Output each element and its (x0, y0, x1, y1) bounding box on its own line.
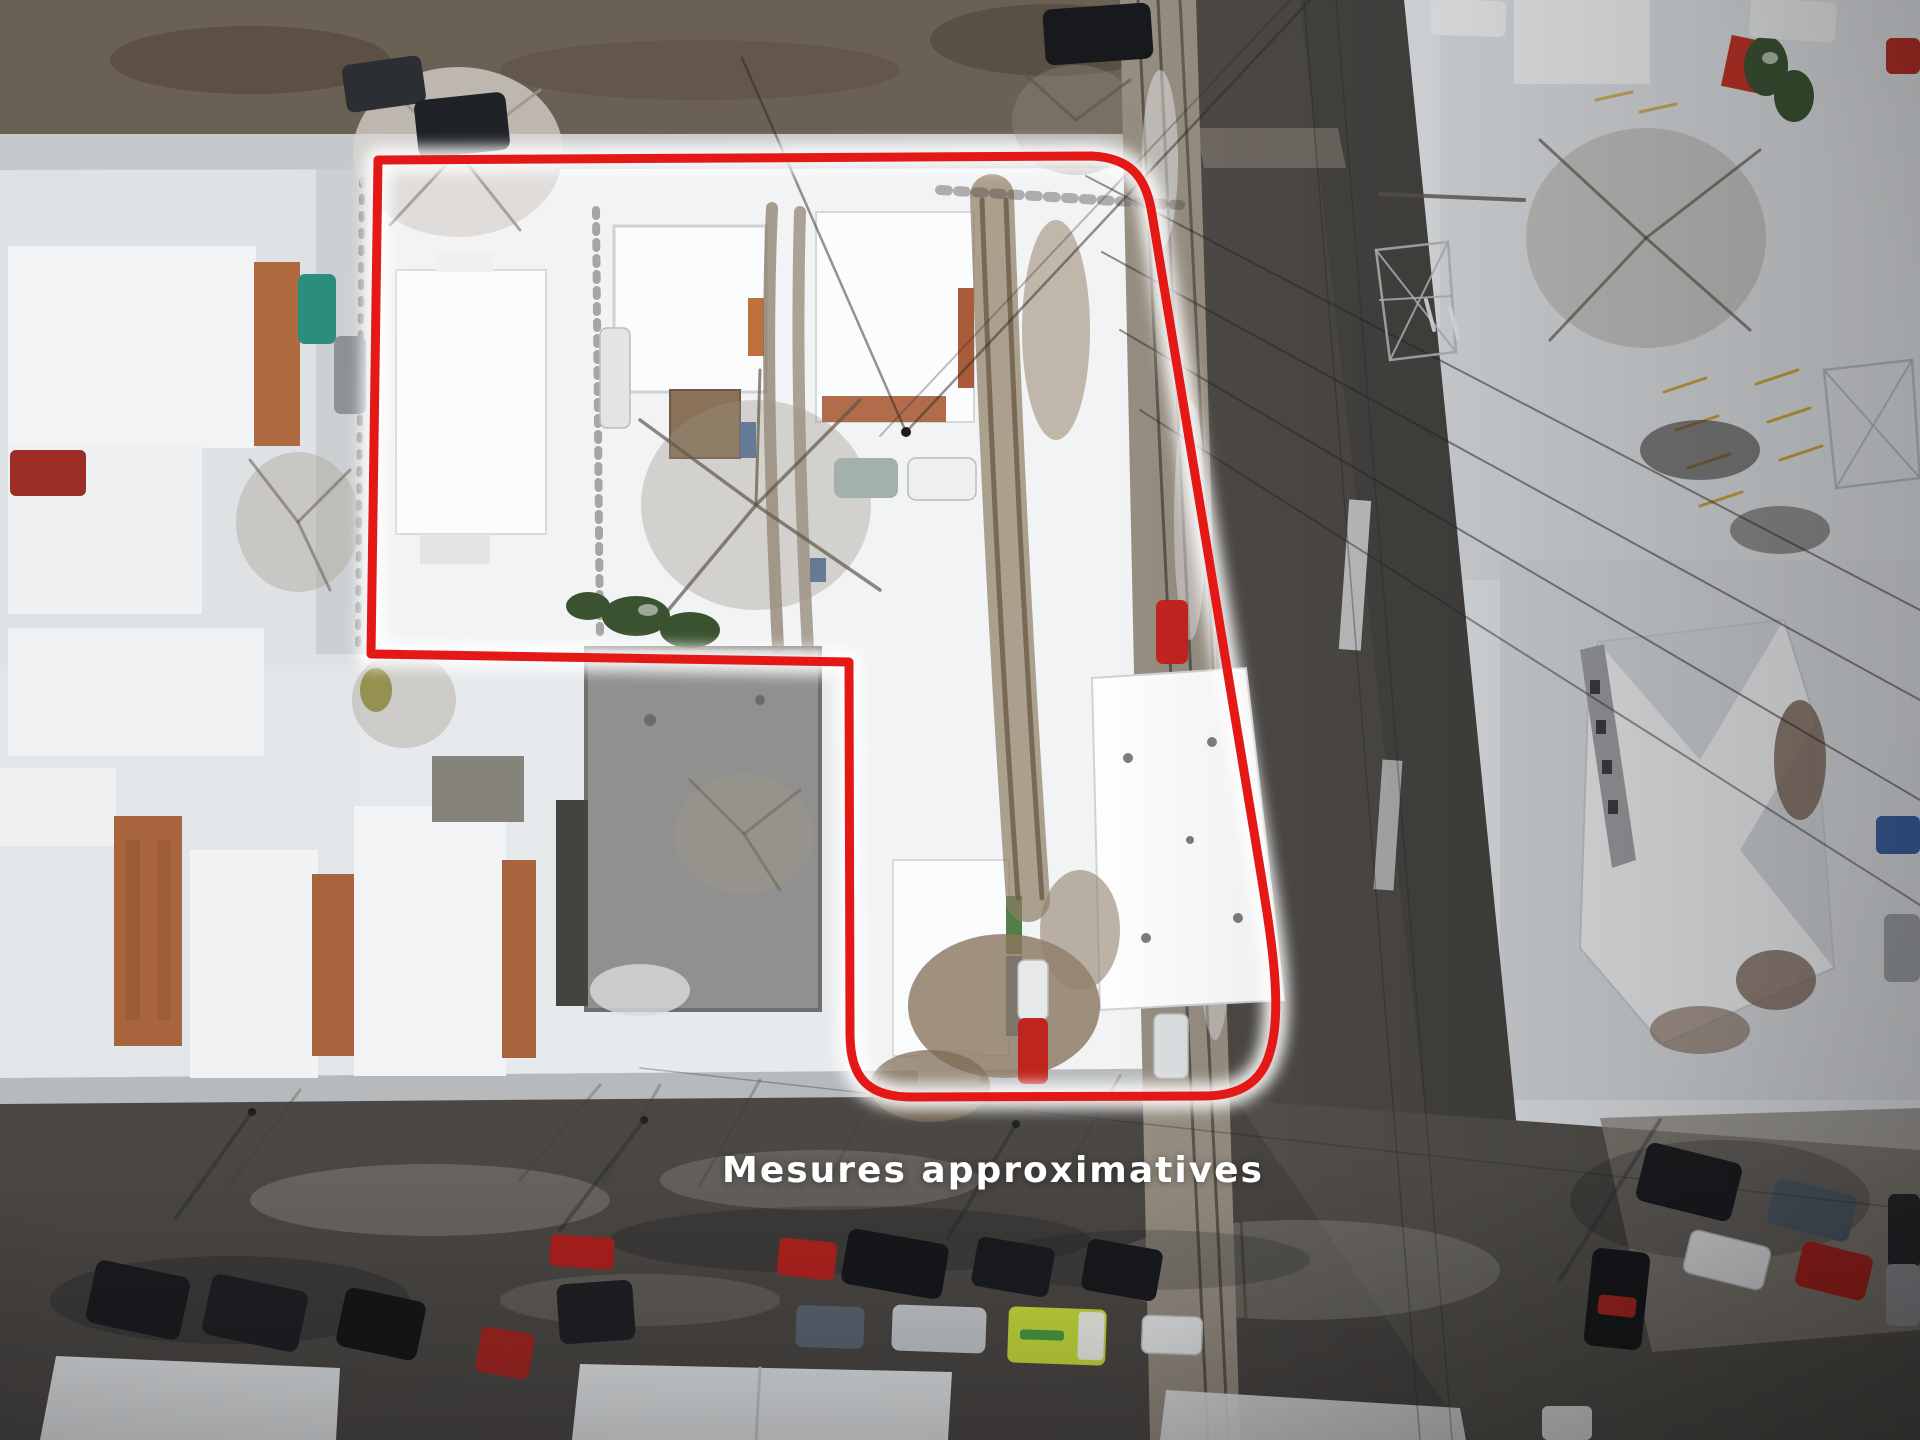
measurements-caption: Mesures approximatives (722, 1150, 1264, 1191)
aerial-photo: Mesures approximatives (0, 0, 1920, 1440)
aerial-scene-svg (0, 0, 1920, 1440)
